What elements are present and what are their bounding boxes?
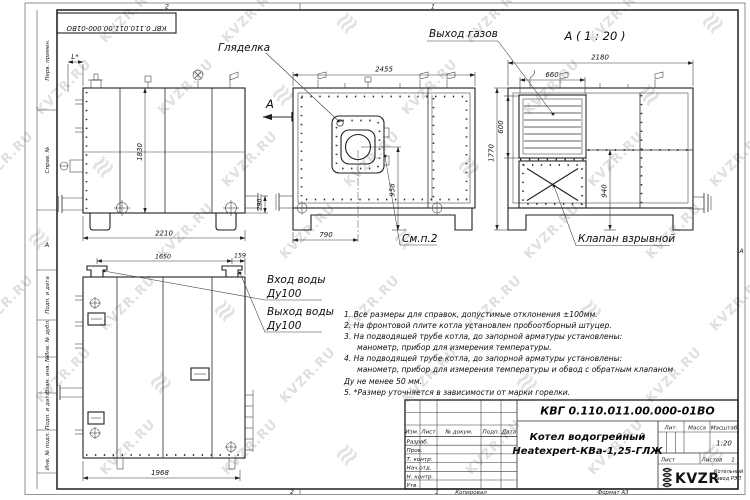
note-line: 4. На подводящей трубе котла, до запорно… bbox=[344, 353, 684, 364]
stamp-perv-primen: Перв. примен. bbox=[45, 39, 51, 81]
list-label: Лист bbox=[660, 458, 676, 464]
format-label: Формат А3 bbox=[597, 490, 629, 496]
view-top: 1650 159 1968 Вход воды Ду100 Выход воды… bbox=[57, 253, 334, 482]
water-outlet-dn: Ду100 bbox=[266, 320, 302, 332]
dim-front-width: 2455 bbox=[375, 66, 393, 74]
logo-sub2: завод РЭП bbox=[714, 476, 741, 482]
water-inlet-label: Вход воды bbox=[267, 274, 326, 286]
dim-gas-outlet-width: 660 bbox=[545, 71, 559, 79]
stamp-sprav-n: Справ. № bbox=[45, 146, 51, 173]
title-block: КВГ 0.110.011.00.000-01ВО Котел водогрей… bbox=[405, 400, 744, 496]
note-line: Ду не менее 50 мм. bbox=[344, 376, 684, 387]
top-right-ladder bbox=[245, 390, 253, 452]
boiler-assembly-drawing: КВГ 0.110.011.00.000-01ВО 2 1 2 1 А А Пе… bbox=[0, 0, 750, 500]
zone-bottom-left: 2 bbox=[290, 488, 294, 496]
kopiroval-label: Копировал bbox=[455, 490, 487, 496]
massa-label: Масса bbox=[688, 426, 706, 432]
col-list: Лист bbox=[420, 430, 436, 436]
zone-letter-right: А bbox=[738, 247, 743, 255]
title-doc-number: КВГ 0.110.011.00.000-01ВО bbox=[540, 405, 714, 418]
gas-outlet-louver bbox=[519, 95, 586, 158]
logo-sub1: Котельный bbox=[714, 469, 744, 475]
dim-gas-outlet-height: 600 bbox=[497, 120, 505, 134]
col-podp: Подп. bbox=[483, 430, 500, 436]
see-note-label: См.п.2 bbox=[402, 233, 438, 245]
stamp-inv-dubl: Инв. № дубл. bbox=[45, 319, 51, 357]
stamp-podp-data-2: Подп. и дата bbox=[45, 392, 51, 430]
dim-side-length: 2210 bbox=[155, 230, 173, 238]
row-tkontr: Т. контр. bbox=[407, 457, 433, 463]
side-foot-left bbox=[90, 213, 110, 230]
dim-pipe-height: 290 bbox=[257, 198, 264, 210]
side-left-fittings bbox=[59, 100, 84, 213]
water-outlet-flange bbox=[222, 266, 242, 277]
side-foot-right bbox=[216, 213, 236, 230]
col-data: Дата bbox=[501, 430, 517, 436]
stamp-inv-podl: Инв. № подл. bbox=[45, 432, 51, 470]
dim-side-height: 1830 bbox=[136, 143, 144, 161]
note-line: 1. Все размеры для справок, допустимые о… bbox=[344, 309, 684, 320]
row-nkontr: Н. контр. bbox=[407, 474, 434, 480]
section-view-title: А ( 1 : 20 ) bbox=[564, 29, 626, 43]
row-utv: Утв. bbox=[407, 483, 419, 489]
note-line: 3. На подводящей трубе котла, до запорно… bbox=[344, 331, 684, 342]
sight-glass-label: Гляделка bbox=[218, 42, 270, 54]
explosion-valve-label: Клапан взрывной bbox=[578, 233, 675, 245]
section-arrow-label: А bbox=[265, 97, 274, 111]
note-line: манометр, прибор для измерения температу… bbox=[344, 342, 684, 353]
dim-top-length: 1968 bbox=[151, 469, 169, 477]
row-prov: Пров. bbox=[407, 448, 423, 454]
anchor-bolt-icon bbox=[114, 200, 239, 216]
product-name-line1: Котел водогрейный bbox=[530, 432, 646, 443]
product-name-line2: Heatexpert-КВа-1,25-ГЛЖ bbox=[512, 446, 663, 457]
stamp-column: Перв. примен. Справ. № Подп. и дата Инв.… bbox=[45, 39, 51, 470]
dim-burner-offset: 790 bbox=[319, 231, 333, 239]
dim-rear-width: 2180 bbox=[591, 54, 609, 62]
listov-label: Листов bbox=[701, 458, 723, 464]
explosion-valve-panel bbox=[519, 161, 586, 208]
zone-letter-left: А bbox=[44, 241, 49, 249]
section-arrow: А bbox=[263, 97, 292, 122]
note-line: 2. На фронтовой плите котла установлен п… bbox=[344, 320, 684, 331]
section-right-pipe bbox=[693, 193, 711, 213]
view-section-a: А ( 1 : 20 ) bbox=[427, 28, 711, 246]
logo-text: KVZR bbox=[675, 471, 720, 487]
note-line: 5. *Размер уточняется в зависимости от м… bbox=[344, 387, 684, 398]
section-base bbox=[508, 208, 693, 230]
col-izm: Изм. bbox=[405, 430, 418, 436]
dim-top-width-edge: 159 bbox=[234, 253, 246, 260]
masshtab-label: Масштаб bbox=[711, 426, 738, 432]
front-base bbox=[293, 208, 472, 230]
dim-overall-height: 1770 bbox=[488, 144, 496, 162]
gas-outlet-label: Выход газов bbox=[429, 28, 498, 40]
burner-plate bbox=[332, 116, 389, 173]
inspection-hatches bbox=[88, 313, 209, 424]
front-left-pipe bbox=[276, 193, 293, 211]
zone-top-right: 1 bbox=[431, 3, 435, 11]
water-outlet-label: Выход воды bbox=[267, 306, 334, 318]
col-doc: № докум. bbox=[444, 430, 473, 436]
dim-l-star: L* bbox=[71, 53, 79, 61]
dim-valve-height: 940 bbox=[601, 184, 609, 198]
water-inlet-dn: Ду100 bbox=[266, 288, 302, 300]
dim-top-width-main: 1650 bbox=[155, 254, 171, 261]
note-line: манометр, прибор для измерения температу… bbox=[344, 364, 684, 375]
notes-block: 1. Все размеры для справок, допустимые о… bbox=[344, 309, 684, 398]
kvzr-logo: KVZR Котельный завод РЭП bbox=[663, 469, 744, 488]
top-left-fittings bbox=[57, 296, 83, 434]
stamp-podp-data-1: Подп. и дата bbox=[45, 276, 51, 314]
stamp-vzam-inv: Взам. инв. № bbox=[45, 356, 51, 394]
front-top-fittings bbox=[318, 72, 455, 88]
doc-number-rotated: КВГ 0.110.011.00.000-01ВО bbox=[66, 24, 166, 32]
listov-value: 1 bbox=[731, 458, 735, 464]
zone-top-left: 2 bbox=[165, 3, 169, 11]
lit-label: Лит. bbox=[664, 426, 678, 432]
side-top-fittings bbox=[88, 70, 238, 88]
view-side: 290 L* 1830 2210 А bbox=[59, 53, 293, 241]
drawing-sheet: ≋KVZR.RUKVZR.RU≋KVZR.RUKVZR.RU≋KVZR.RUKV… bbox=[0, 0, 750, 500]
row-nachotd: Нач.отд. bbox=[407, 466, 432, 472]
view-front: 2455 790 958 Гляделка См.п.2 bbox=[218, 42, 475, 245]
row-razrab: Разраб. bbox=[407, 440, 429, 446]
masshtab-value: 1:20 bbox=[716, 440, 732, 448]
sheet-frame: КВГ 0.110.011.00.000-01ВО 2 1 2 1 А А Пе… bbox=[25, 3, 745, 496]
